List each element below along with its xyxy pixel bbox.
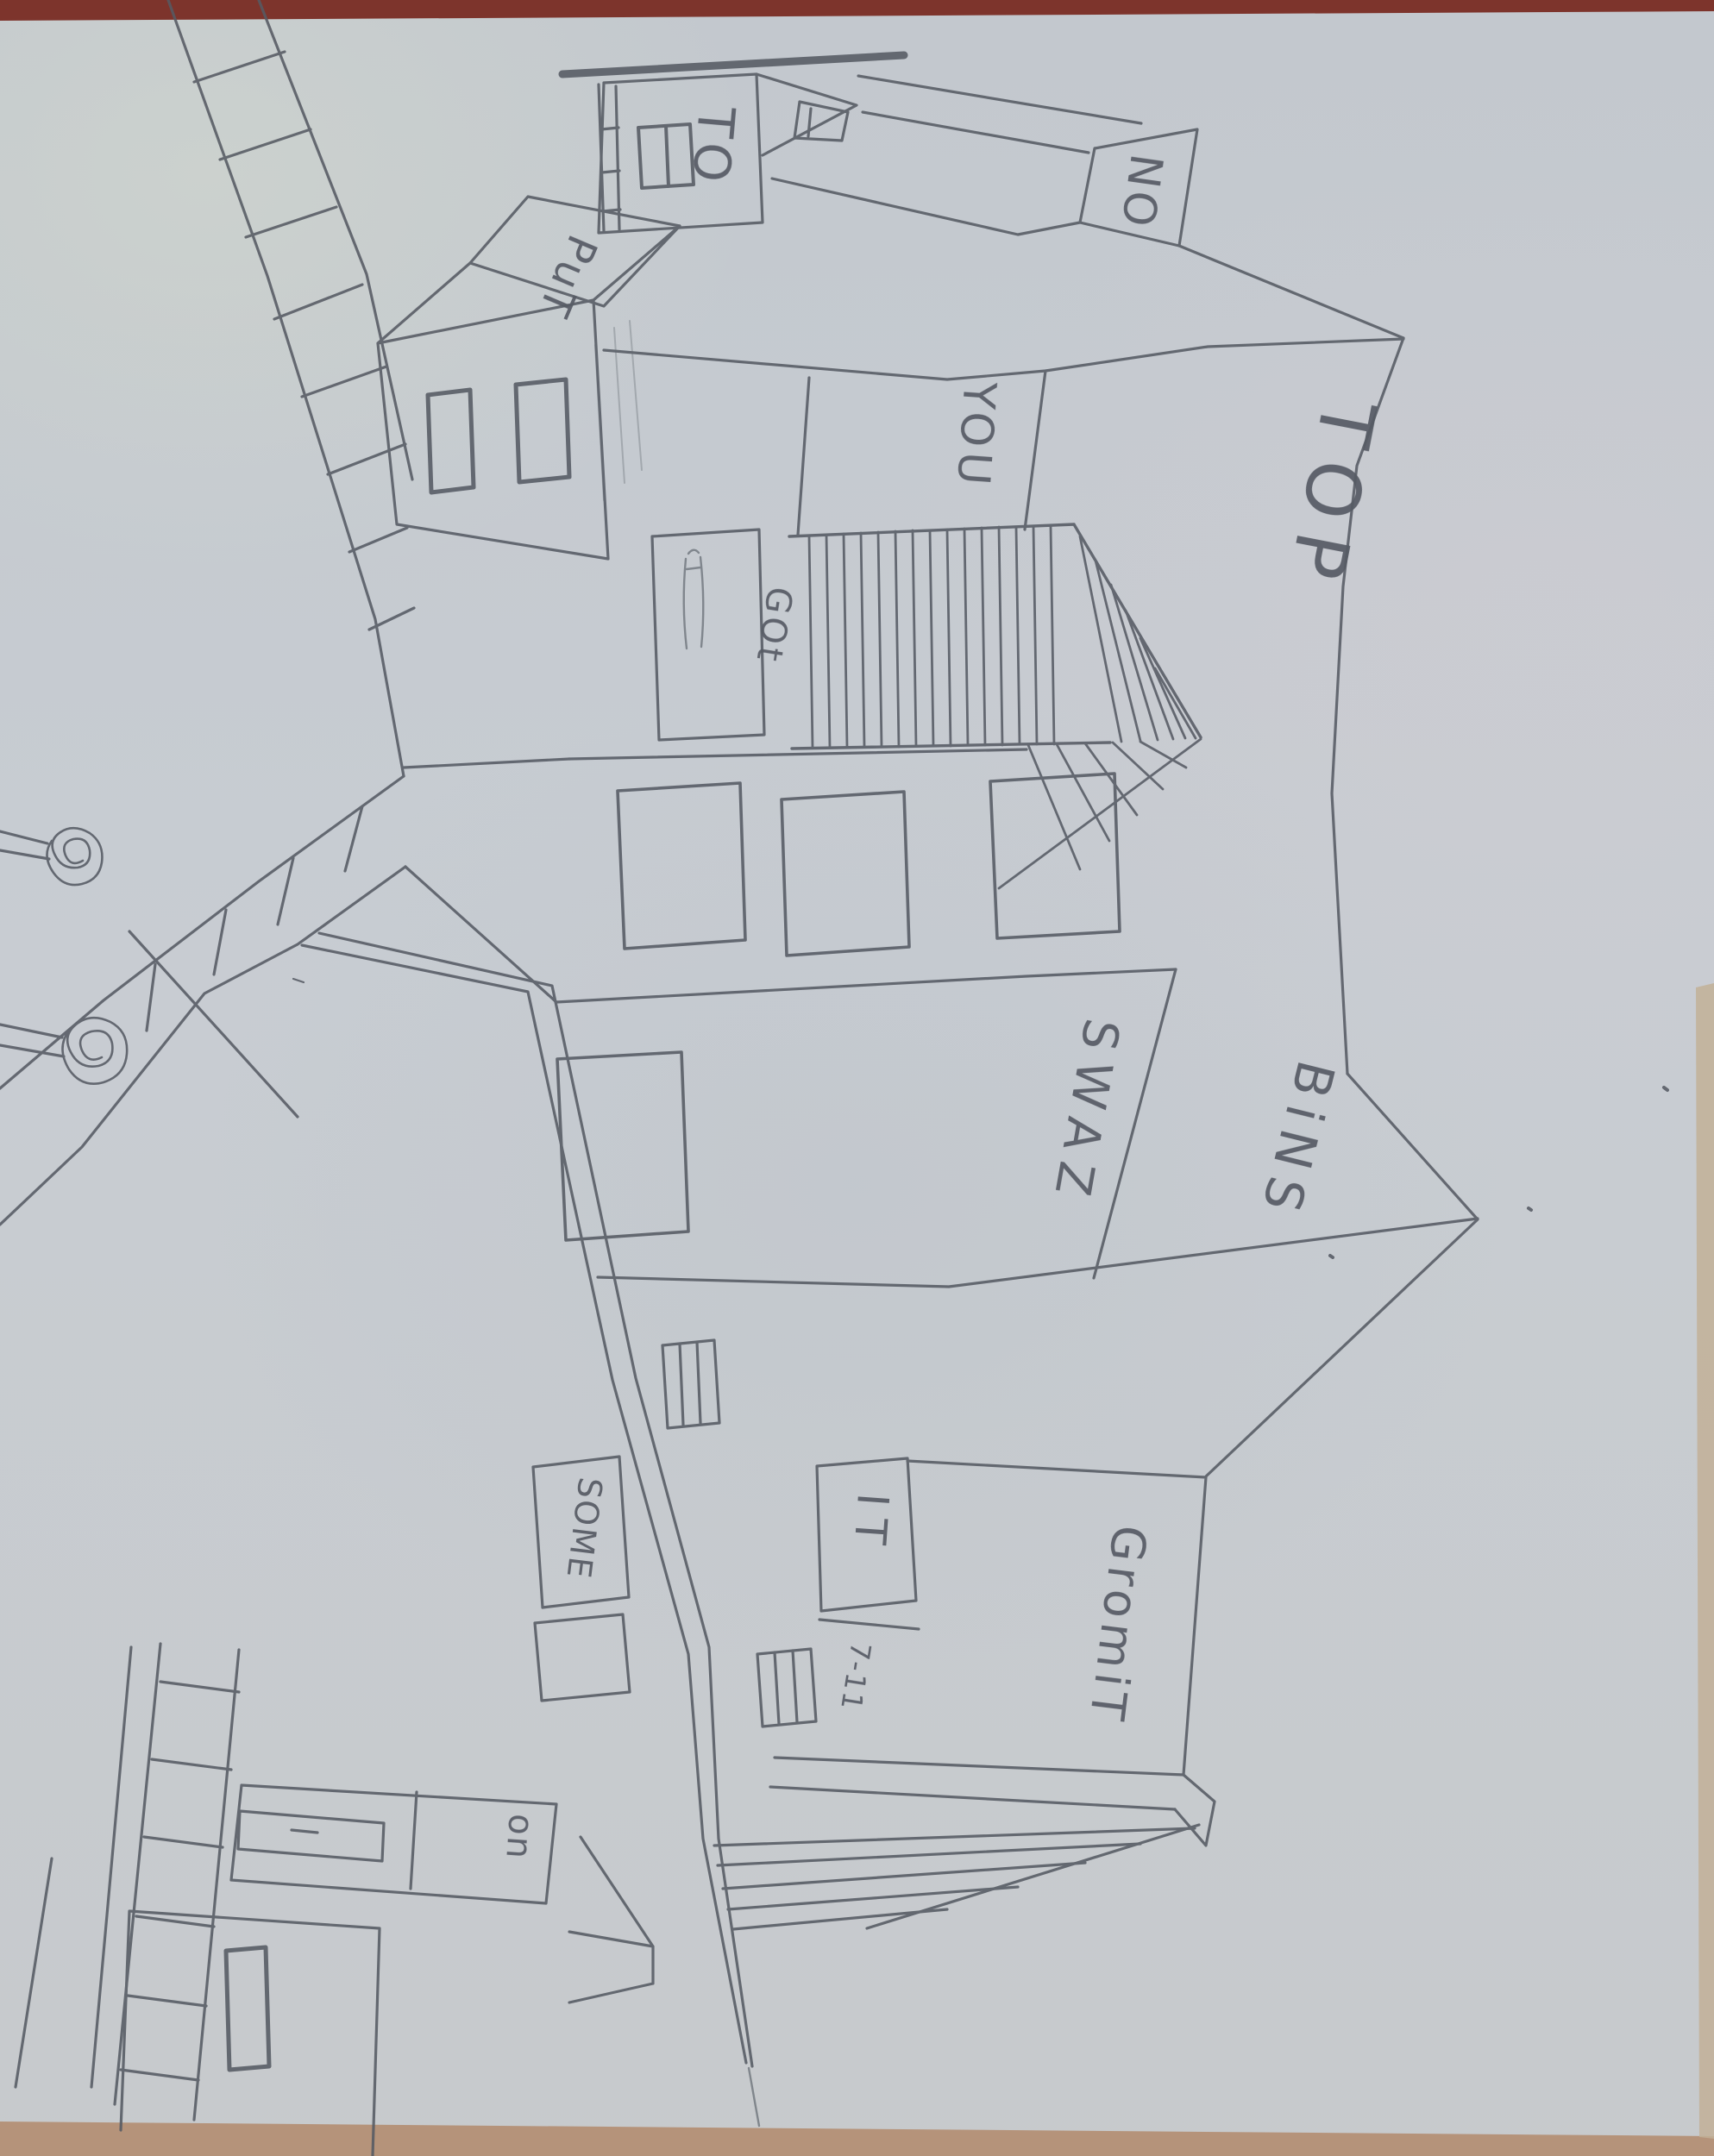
band-edges — [168, 0, 412, 776]
small-dash — [293, 979, 304, 982]
gromit-base-wedge — [1175, 1775, 1215, 1846]
roof-shading — [595, 321, 642, 500]
to-side-roof-wedge — [757, 74, 857, 155]
crossing-line — [129, 931, 298, 1117]
building-top — [604, 338, 1403, 1074]
band-bricks — [121, 1682, 239, 2080]
sign-on-label: on — [498, 1813, 541, 1862]
sign-swaz-label: SWAZ — [1041, 1014, 1129, 1211]
awning-striped — [789, 524, 1201, 888]
paper-edge-right — [1696, 983, 1714, 2139]
to-roof-heavy-line — [562, 55, 904, 74]
window-3bar-711 — [757, 1649, 816, 1727]
road-fan-lines — [714, 1828, 1195, 1929]
sign-got-label: GOt — [748, 584, 800, 667]
dark-door — [226, 1947, 269, 2070]
footpath-bricks-bottom — [16, 1644, 239, 2120]
ridge-to-top-peak — [1179, 246, 1403, 338]
slit-house-face — [378, 226, 680, 559]
building-you — [798, 371, 1045, 535]
door-frame — [652, 530, 764, 740]
pencil-street-sketch: TO PuT NO YOU GOt TOP SWAZ BiNS SOME IT … — [0, 0, 1714, 2156]
some-signboard — [535, 1614, 630, 1701]
footpath-elbow — [0, 776, 405, 1225]
awning-side-slats — [999, 739, 1201, 888]
door-got — [652, 530, 764, 740]
sign-bins-label: BiNS — [1248, 1055, 1347, 1227]
row-front-top-edge — [604, 339, 1403, 379]
building-to — [562, 55, 1141, 235]
long-sign-board — [238, 1811, 384, 1861]
figure-in-door — [684, 550, 704, 649]
footpath-bricks-top — [168, 0, 414, 776]
you-face-edges — [798, 371, 1045, 535]
faint-tail-line — [749, 2068, 759, 2126]
sign-gromit-label: GromiT — [1078, 1522, 1157, 1727]
elbow-inner — [0, 867, 405, 1225]
sign-to-label: TO — [681, 103, 746, 190]
sign-711-label: 7-11 — [834, 1640, 877, 1714]
sign-you-label: YOU — [946, 379, 1006, 492]
road-convergence-bottom — [569, 1825, 1199, 2126]
swaz-bins-base-line — [598, 1219, 1478, 1287]
sign-top-label: TOP — [1270, 392, 1392, 601]
building-gromit — [770, 1461, 1215, 1846]
curb-outer — [302, 945, 746, 2063]
sign-it-label: IT — [844, 1492, 898, 1558]
bins-gable-point — [1206, 1074, 1478, 1476]
photo-of-pencil-sketch: TO PuT NO YOU GOt TOP SWAZ BiNS SOME IT … — [0, 0, 1714, 2156]
elbow-bricks — [147, 806, 362, 1031]
sign-no-label: NO — [1110, 151, 1172, 233]
row-ridge-lines — [858, 76, 1141, 153]
row-back-edge-line — [772, 179, 1080, 235]
building-door-bottom — [121, 1911, 380, 2156]
awning-slats-fan — [1080, 536, 1196, 742]
band-lines — [16, 1644, 239, 2120]
awning-outline — [789, 524, 1201, 749]
street-curb-lines — [302, 759, 752, 2066]
lamp1-scribble-head — [47, 828, 102, 885]
table-edge-top — [0, 0, 1714, 21]
building-put — [378, 197, 680, 559]
street-lamp-1 — [0, 828, 102, 885]
table-edge-bottom — [0, 2122, 1714, 2156]
window-2 — [782, 792, 909, 956]
lamp2-scribble-head — [63, 1018, 128, 1084]
curb-to-wall-connectors — [404, 759, 569, 1002]
kerb-corner-arrow — [569, 1837, 653, 2002]
window-3 — [990, 774, 1120, 938]
elbow-outer — [0, 776, 404, 1088]
window-3bar-mid — [662, 1340, 719, 1428]
lamp1-post — [0, 831, 49, 859]
window-1 — [618, 783, 745, 949]
strip-711-top-edge — [819, 1620, 919, 1629]
awning-slats-vertical — [809, 525, 1054, 748]
sign-some-label: SOME — [559, 1476, 609, 1582]
slit-windows — [428, 379, 569, 492]
